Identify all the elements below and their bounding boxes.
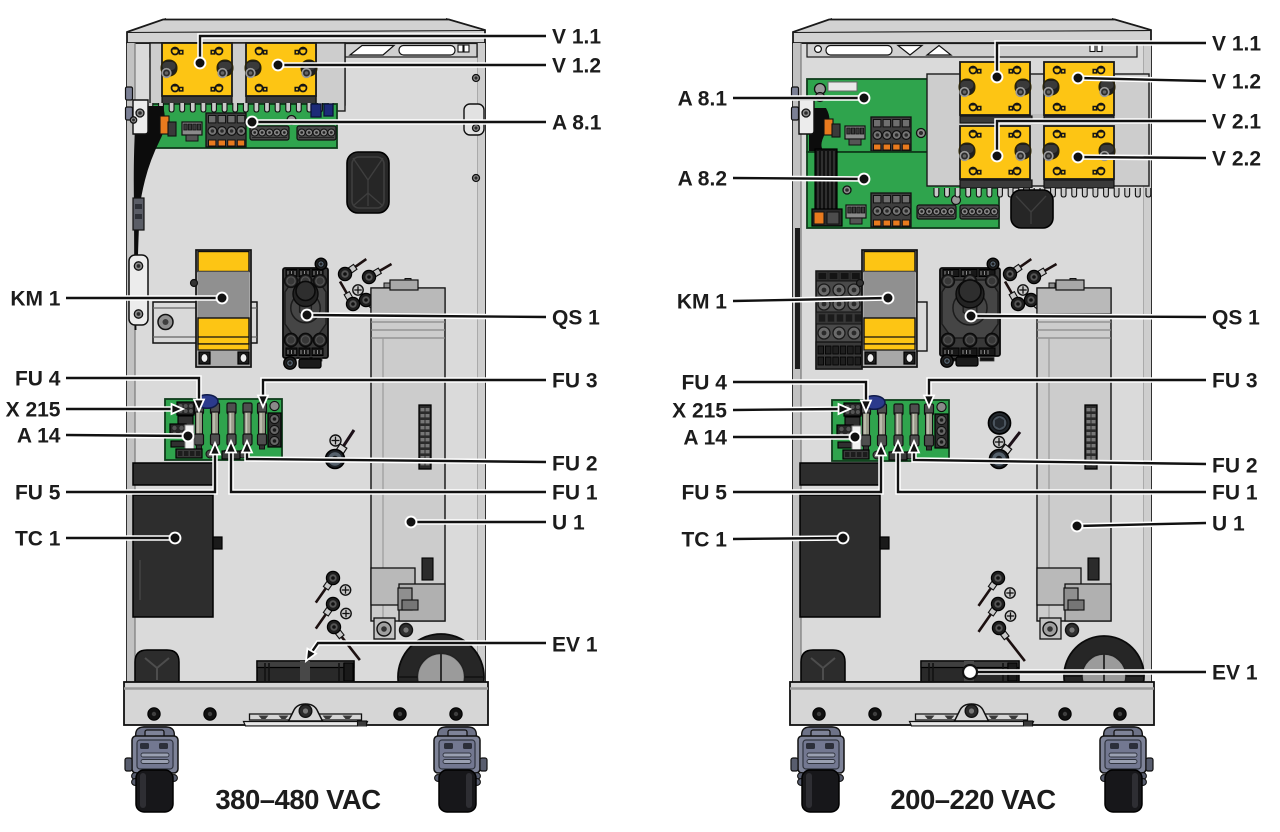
svg-text:V 2.2: V 2.2 [1212, 148, 1261, 171]
svg-text:X 215: X 215 [6, 399, 61, 422]
svg-text:FU 2: FU 2 [552, 453, 598, 476]
svg-text:A 8.2: A 8.2 [678, 168, 727, 191]
svg-text:FU 4: FU 4 [15, 368, 61, 391]
svg-text:QS 1: QS 1 [552, 307, 600, 330]
svg-text:TC 1: TC 1 [681, 529, 727, 552]
svg-text:A 14: A 14 [683, 427, 727, 450]
svg-text:QS 1: QS 1 [1212, 307, 1260, 330]
svg-text:FU 2: FU 2 [1212, 455, 1258, 478]
svg-text:200–220 VAC: 200–220 VAC [890, 784, 1056, 815]
svg-text:U 1: U 1 [1212, 513, 1245, 536]
svg-text:EV 1: EV 1 [1212, 662, 1258, 685]
svg-text:FU 1: FU 1 [552, 482, 598, 505]
svg-text:380–480 VAC: 380–480 VAC [215, 784, 381, 815]
svg-text:EV 1: EV 1 [552, 634, 598, 657]
svg-text:FU 5: FU 5 [15, 482, 61, 505]
svg-text:FU 3: FU 3 [552, 370, 598, 393]
svg-text:V 1.1: V 1.1 [552, 26, 601, 49]
svg-text:FU 1: FU 1 [1212, 482, 1258, 505]
svg-text:A 8.1: A 8.1 [552, 112, 602, 135]
svg-text:TC 1: TC 1 [15, 528, 61, 551]
svg-text:V 1.1: V 1.1 [1212, 33, 1261, 56]
svg-text:KM 1: KM 1 [10, 288, 60, 311]
svg-text:V 2.1: V 2.1 [1212, 111, 1261, 134]
svg-text:X 215: X 215 [672, 400, 727, 423]
svg-text:A 14: A 14 [17, 425, 61, 448]
svg-text:KM 1: KM 1 [677, 291, 727, 314]
svg-text:V 1.2: V 1.2 [1212, 71, 1261, 94]
svg-text:A 8.1: A 8.1 [678, 88, 728, 111]
svg-text:U 1: U 1 [552, 512, 585, 535]
svg-text:V 1.2: V 1.2 [552, 55, 601, 78]
svg-text:FU 4: FU 4 [681, 372, 727, 395]
svg-text:FU 3: FU 3 [1212, 370, 1258, 393]
svg-text:FU 5: FU 5 [681, 482, 727, 505]
